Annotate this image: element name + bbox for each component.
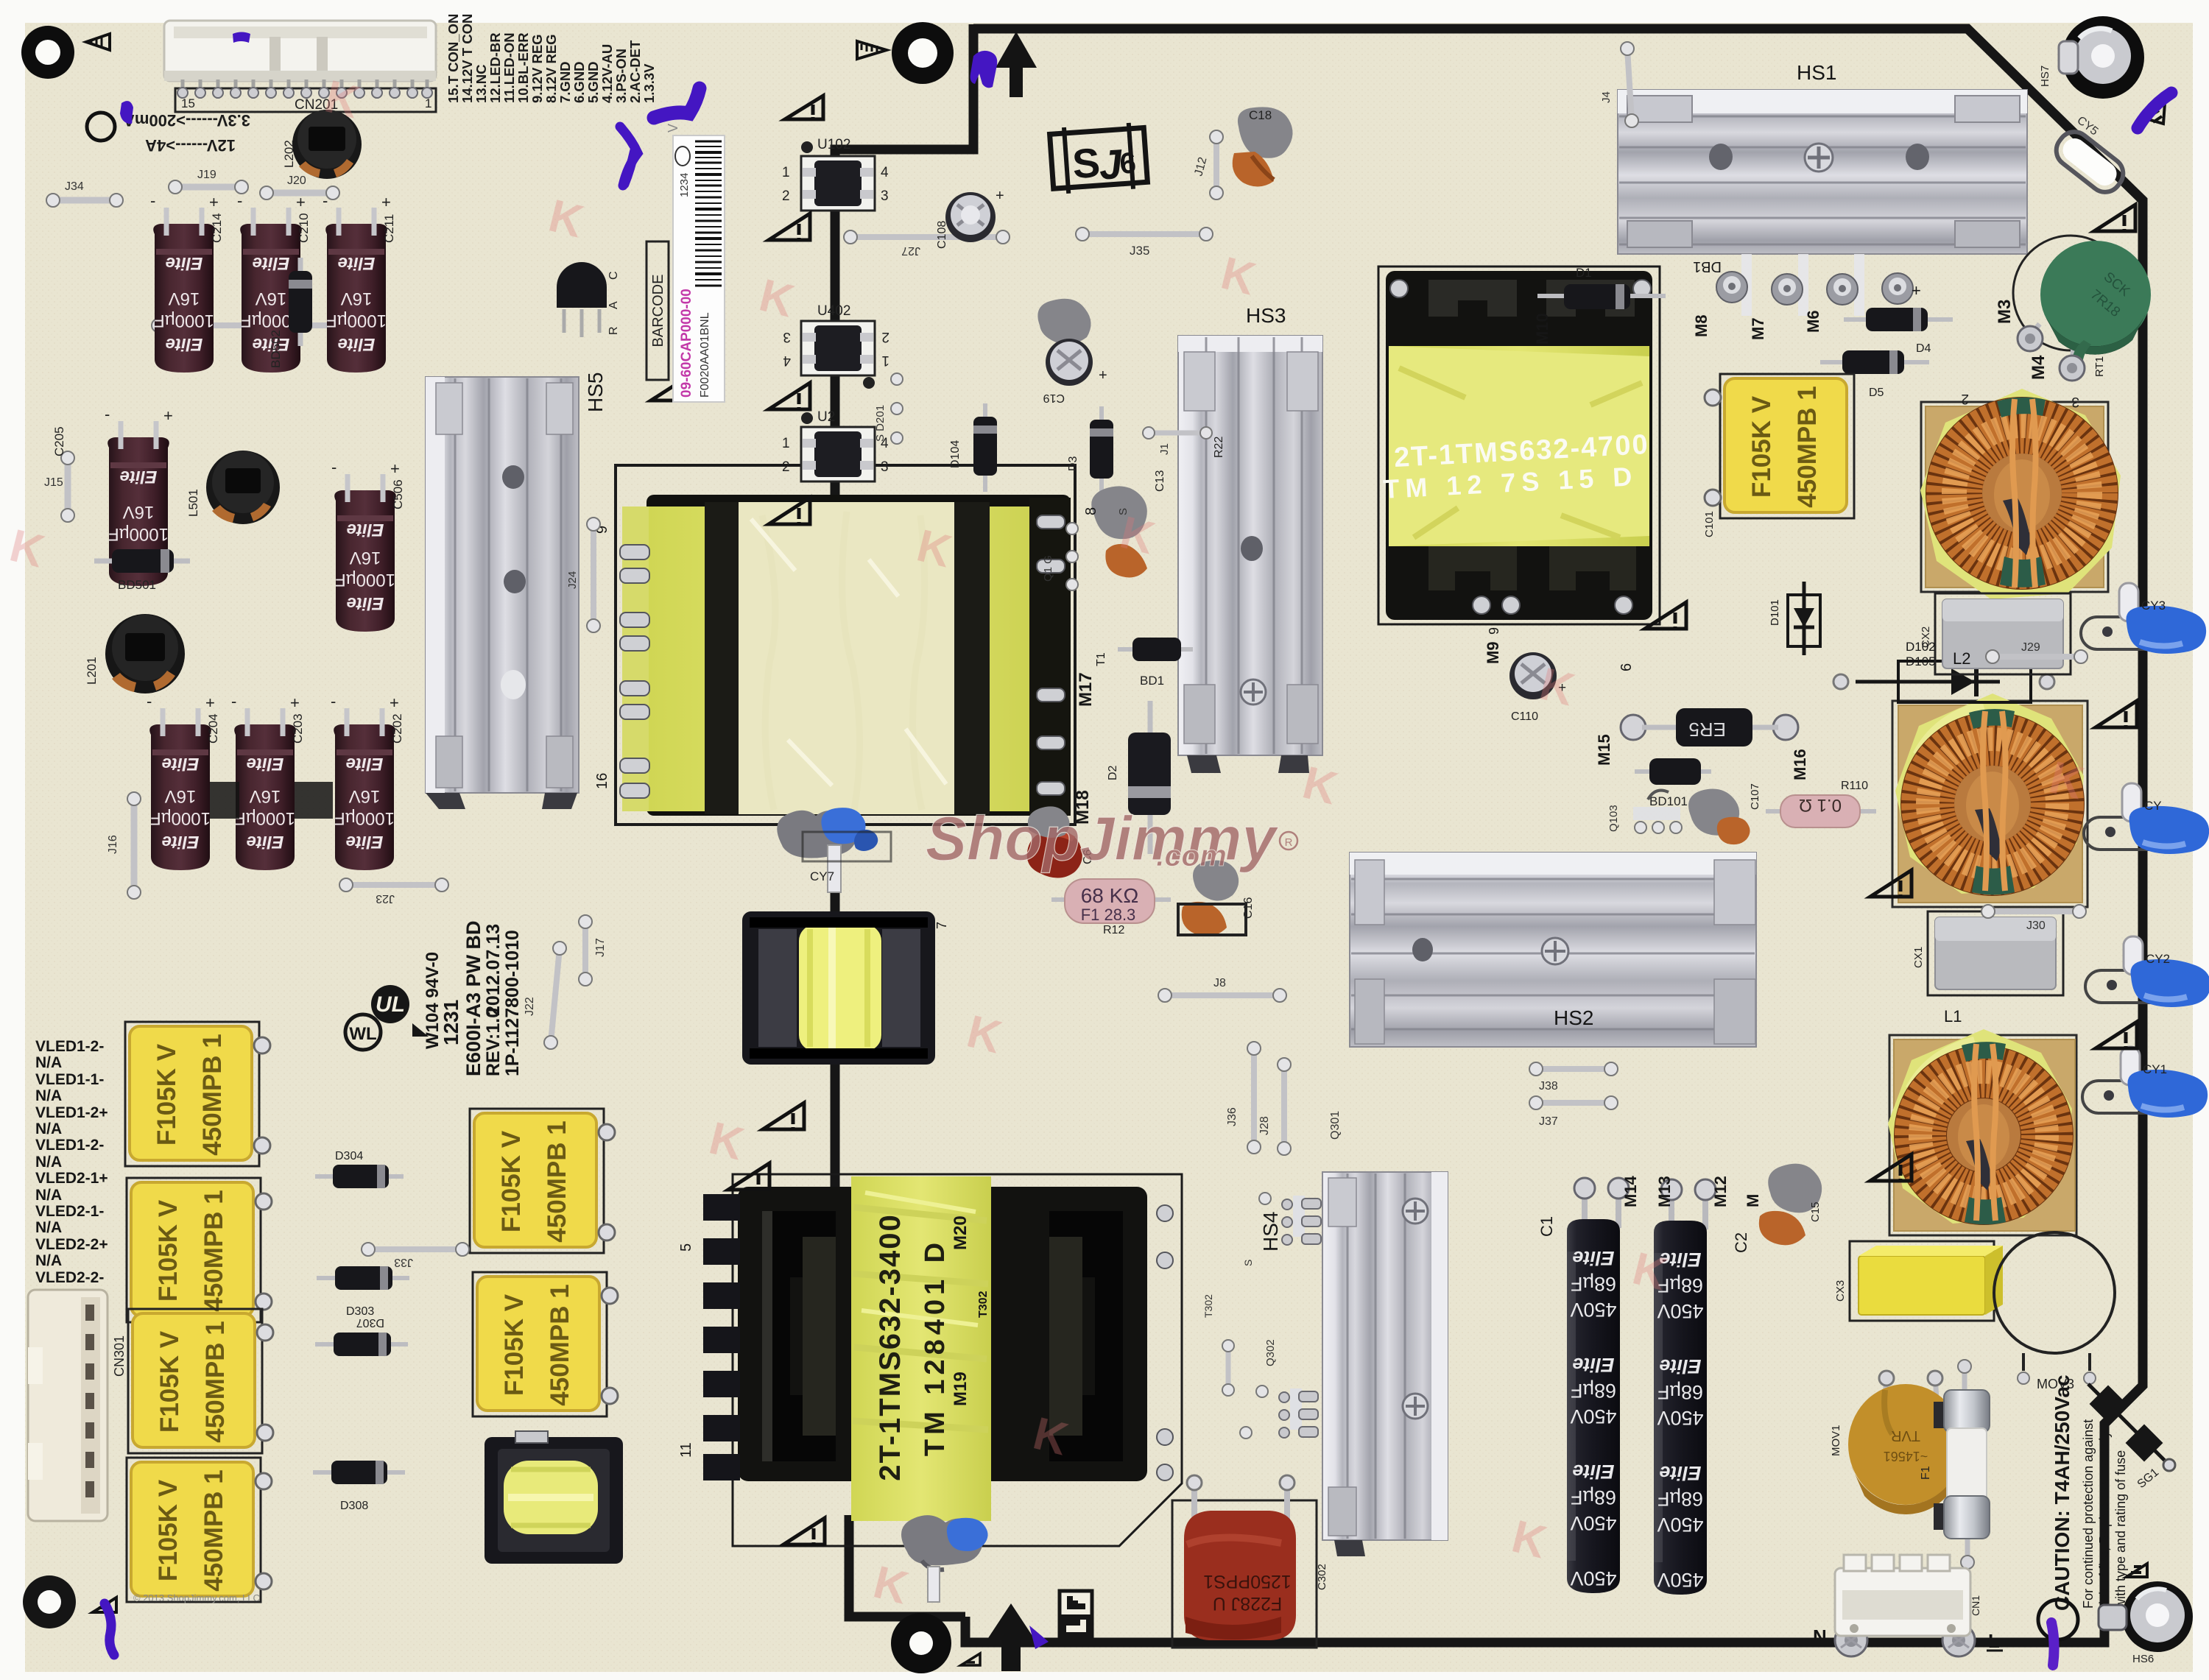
svg-text:~14561: ~14561 [1884,1449,1928,1464]
svg-text:M20: M20 [951,1215,970,1250]
svg-text:VLED1-1-: VLED1-1- [35,1071,104,1088]
svg-text:1: 1 [881,353,889,368]
svg-text:A: A [607,301,620,309]
svg-text:16V: 16V [350,548,381,568]
svg-text:+: + [390,693,399,712]
svg-text:14.12V T CON: 14.12V T CON [459,14,475,103]
svg-text:N: N [1813,1626,1827,1648]
svg-text:CN1: CN1 [1970,1595,1981,1616]
svg-text:16V: 16V [123,502,155,522]
svg-text:3: 3 [881,459,889,475]
svg-text:HS3: HS3 [1246,304,1286,327]
svg-text:C214: C214 [210,213,224,243]
svg-text:4: 4 [783,353,791,368]
svg-text:D4: D4 [1916,342,1931,355]
svg-text:J37: J37 [1539,1115,1558,1128]
svg-text:1234: 1234 [678,173,691,197]
svg-text:5: 5 [678,1243,694,1252]
svg-text:L1: L1 [1944,1007,1962,1026]
svg-text:-: - [147,692,152,710]
svg-text:450MPB 1: 450MPB 1 [200,1190,228,1311]
svg-text:U402: U402 [817,303,850,319]
svg-text:68 KΩ: 68 KΩ [1081,884,1139,907]
svg-text:T302: T302 [977,1291,990,1318]
svg-text:+: + [1099,367,1107,384]
svg-text:Elite: Elite [1659,1355,1701,1377]
svg-text:+: + [390,459,400,478]
svg-text:-: - [237,191,242,210]
svg-text:C210: C210 [297,213,311,243]
svg-text:Elite: Elite [120,467,158,487]
svg-text:C15: C15 [1809,1201,1822,1222]
svg-text:16V: 16V [250,786,281,806]
svg-text:Elite: Elite [1572,1247,1614,1269]
svg-text:C506: C506 [391,479,405,509]
svg-text:VLED1-2-: VLED1-2- [35,1038,104,1055]
svg-text:M10: M10 [1533,313,1551,345]
svg-text:J35: J35 [1130,244,1149,258]
svg-text:450V: 450V [1570,1567,1616,1589]
svg-text:C1: C1 [1537,1216,1556,1237]
svg-text:F105K V: F105K V [500,1293,529,1396]
svg-text:T302: T302 [1202,1294,1214,1318]
svg-text:C2: C2 [1732,1232,1750,1253]
svg-text:U102: U102 [817,137,850,152]
svg-text:N/A: N/A [35,1087,62,1104]
svg-text:MOV1: MOV1 [1830,1425,1842,1456]
svg-text:450V: 450V [1657,1514,1703,1536]
svg-text:450MPB 1: 450MPB 1 [543,1120,571,1242]
svg-text:Elite: Elite [166,334,203,354]
svg-text:450V: 450V [1657,1407,1703,1429]
svg-text:2: 2 [782,459,790,475]
svg-text:CY3: CY3 [2141,599,2166,613]
svg-text:F0020AA01BNL: F0020AA01BNL [699,312,711,398]
svg-text:CY1: CY1 [2143,1062,2167,1076]
svg-text:C19: C19 [1043,392,1065,404]
svg-text:CN301: CN301 [112,1335,127,1377]
svg-text:9.12V REG: 9.12V REG [529,34,545,103]
svg-text:1: 1 [782,165,790,180]
svg-text:J23: J23 [376,892,395,905]
svg-text:CY7: CY7 [810,869,834,883]
svg-text:T1: T1 [1095,652,1107,666]
svg-text:TM 128401 D: TM 128401 D [920,1238,951,1456]
svg-text:D308: D308 [340,1500,368,1512]
svg-text:M: M [1744,1194,1762,1207]
svg-text:68µF: 68µF [1571,1380,1616,1402]
svg-text:1000µF: 1000µF [154,311,214,331]
svg-text:C110: C110 [1511,710,1538,723]
svg-text:BD1: BD1 [1140,674,1164,688]
svg-text:+: + [381,193,391,211]
svg-text:© 2013 ShopJimmy.com, LLC: © 2013 ShopJimmy.com, LLC [133,1592,260,1603]
svg-text:C: C [607,271,620,280]
svg-text:J27: J27 [901,244,920,257]
svg-text:M4: M4 [2029,355,2048,380]
svg-text:1.3.3V: 1.3.3V [641,63,657,103]
svg-text:J17: J17 [594,938,607,957]
svg-text:L2: L2 [1953,649,1970,668]
svg-text:Elite: Elite [347,593,384,613]
svg-text:VLED1-2-: VLED1-2- [35,1137,104,1154]
svg-text:Elite: Elite [346,832,384,852]
svg-text:8: 8 [1083,507,1099,515]
svg-text:11.LED-ON: 11.LED-ON [501,32,517,103]
svg-text:J38: J38 [1539,1080,1558,1093]
svg-text:68µF: 68µF [1571,1273,1616,1295]
svg-text:HS6: HS6 [2132,1653,2154,1665]
svg-text:F105K V: F105K V [152,1043,181,1146]
svg-text:2012.07.13: 2012.07.13 [483,924,504,1016]
svg-text:CY: CY [2144,799,2162,813]
svg-text:2T-1TMS632-3400: 2T-1TMS632-3400 [874,1213,906,1481]
svg-text:0.1 Ω: 0.1 Ω [1799,795,1842,815]
svg-text:Q301: Q301 [1329,1111,1342,1140]
svg-text:HS1: HS1 [1797,61,1836,84]
svg-text:1250PPS1: 1250PPS1 [1203,1571,1292,1592]
svg-text:Elite: Elite [338,334,376,354]
svg-text:Elite: Elite [347,520,384,540]
svg-text:L202: L202 [282,140,296,168]
svg-text:M12: M12 [1711,1176,1730,1207]
svg-text:1P-1127800-1010: 1P-1127800-1010 [502,930,523,1076]
svg-text:-: - [105,405,110,423]
svg-text:J36: J36 [1226,1107,1239,1126]
svg-text:450V: 450V [1657,1300,1703,1322]
svg-text:BARCODE: BARCODE [650,275,666,347]
svg-text:C108: C108 [936,221,948,249]
svg-text:6.GND: 6.GND [571,61,587,103]
svg-text:U2: U2 [817,409,835,425]
svg-text:F105K V: F105K V [154,1479,183,1581]
svg-text:+: + [290,693,300,712]
svg-text:VLED2-2-: VLED2-2- [35,1269,104,1286]
svg-text:D3: D3 [1067,456,1079,471]
svg-text:with type and rating of fuse: with type and rating of fuse [2113,1450,2128,1609]
svg-text:C18: C18 [1249,108,1272,122]
svg-text:CX1: CX1 [1912,947,1925,968]
svg-text:F228J U: F228J U [1213,1593,1282,1614]
svg-text:15.T CON_ON: 15.T CON_ON [445,14,461,103]
svg-text:M13: M13 [1655,1176,1674,1207]
svg-text:V: V [666,124,680,133]
svg-text:3: 3 [783,329,791,345]
svg-text:D1: D1 [1576,266,1592,280]
svg-text:M7: M7 [1749,317,1767,340]
svg-text:12.LED-BR: 12.LED-BR [487,32,503,103]
svg-text:J19: J19 [197,169,216,181]
svg-text:C302: C302 [1316,1564,1328,1590]
svg-text:16V: 16V [341,289,373,308]
svg-text:68µF: 68µF [1657,1381,1703,1403]
svg-text:R12: R12 [1103,924,1124,936]
svg-text:BD101: BD101 [1649,794,1688,808]
svg-text:M18: M18 [1073,790,1093,825]
svg-text:-: - [331,692,336,710]
svg-text:J8: J8 [1213,977,1226,989]
svg-text:+: + [996,188,1004,204]
svg-text:DB1: DB1 [1693,258,1722,275]
svg-text:WL: WL [349,1024,376,1044]
svg-text:M14: M14 [1621,1175,1640,1207]
svg-text:Elite: Elite [162,754,200,774]
svg-text:M6: M6 [1804,310,1822,333]
svg-text:J20: J20 [287,174,306,187]
svg-text:3: 3 [2071,394,2079,409]
svg-text:TVR: TVR [1891,1427,1920,1444]
svg-text:F105K V: F105K V [155,1330,184,1433]
svg-text:Q302: Q302 [1264,1339,1277,1366]
svg-text:11: 11 [678,1442,694,1458]
svg-text:C101: C101 [1703,511,1716,537]
svg-text:+: + [296,193,306,211]
svg-text:R110: R110 [1841,780,1868,792]
svg-text:M15: M15 [1595,734,1613,766]
svg-text:UL: UL [376,992,405,1017]
svg-text:S: S [1242,1260,1254,1266]
svg-text:1000µF: 1000µF [326,311,387,331]
svg-text:N/A: N/A [35,1154,62,1171]
svg-text:N/A: N/A [35,1252,62,1269]
svg-text:R: R [1285,836,1293,849]
svg-text:-: - [231,692,236,710]
svg-text:C204: C204 [206,713,220,744]
svg-text:+: + [209,193,219,211]
svg-text:450V: 450V [1570,1512,1616,1534]
svg-text:HS5: HS5 [584,373,607,412]
svg-text:3.3V------>200mA: 3.3V------>200mA [123,111,250,130]
svg-text:2.AC-DET: 2.AC-DET [627,40,643,103]
svg-text:J33: J33 [394,1256,413,1268]
svg-text:J34: J34 [65,180,84,193]
svg-text:450MPB 1: 450MPB 1 [200,1469,228,1591]
svg-text:F105K V: F105K V [497,1130,526,1232]
svg-text:1: 1 [425,96,431,110]
svg-text:7.GND: 7.GND [557,61,573,103]
svg-text:F1: F1 [1920,1466,1932,1480]
svg-text:Elite: Elite [1659,1462,1701,1484]
svg-text:Elite: Elite [338,253,376,273]
svg-text:6: 6 [1118,147,1137,180]
svg-text:450MPB 1: 450MPB 1 [546,1284,574,1405]
svg-text:C16: C16 [1242,897,1255,919]
svg-text:J1: J1 [1158,443,1171,455]
svg-text:+: + [163,406,173,425]
svg-text:1000µF: 1000µF [108,524,169,544]
svg-text:J22: J22 [524,997,536,1016]
svg-text:N/A: N/A [35,1054,62,1071]
svg-text:.com: .com [1156,839,1227,872]
svg-text:Elite: Elite [1572,1354,1614,1376]
svg-text:D304: D304 [335,1150,363,1162]
svg-text:16: 16 [594,773,610,789]
svg-text:M8: M8 [1692,314,1711,337]
svg-text:ER5: ER5 [1688,719,1726,741]
svg-text:M19: M19 [951,1372,970,1406]
svg-text:8.12V REG: 8.12V REG [543,34,559,103]
svg-text:D2: D2 [1107,765,1119,780]
svg-text:CX2: CX2 [1920,627,1932,648]
svg-text:Elite: Elite [247,832,284,852]
svg-text:16V: 16V [169,289,200,308]
svg-text:4: 4 [881,165,889,180]
svg-text:68µF: 68µF [1657,1488,1703,1510]
svg-text:16V: 16V [349,786,381,806]
svg-text:2: 2 [1961,391,1969,406]
svg-text:REV:1.0: REV:1.0 [483,1008,504,1076]
svg-text:+: + [1912,281,1921,300]
svg-text:J16: J16 [107,835,119,854]
svg-text:D5: D5 [1869,387,1884,399]
svg-text:12V------>4A: 12V------>4A [145,136,236,155]
svg-text:Elite: Elite [346,754,384,774]
svg-text:Elite: Elite [253,253,290,273]
svg-text:6: 6 [1618,663,1635,671]
svg-text:Q103: Q103 [1607,805,1620,832]
svg-text:450V: 450V [1570,1299,1616,1321]
svg-text:-: - [150,191,155,210]
svg-text:N/A: N/A [35,1120,62,1137]
svg-text:M3: M3 [1995,300,2015,324]
svg-text:1000µF: 1000µF [235,808,295,828]
svg-text:VLED2-2+: VLED2-2+ [35,1236,108,1253]
svg-text:J30: J30 [2026,920,2046,932]
svg-text:9: 9 [1487,627,1501,635]
svg-text:68µF: 68µF [1571,1486,1616,1508]
svg-text:D104: D104 [949,440,962,468]
svg-text:450MPB 1: 450MPB 1 [201,1321,230,1442]
svg-text:E600I-A3 PW BD: E600I-A3 PW BD [462,920,485,1076]
svg-text:+: + [205,693,215,712]
svg-text:2: 2 [782,188,790,204]
svg-text:C13: C13 [1154,470,1166,492]
svg-text:BD502: BD502 [269,330,283,368]
svg-text:J24: J24 [566,571,579,589]
svg-text:M9: M9 [1484,641,1502,664]
svg-text:09-60CAP000-00: 09-60CAP000-00 [679,289,694,398]
svg-text:1231: 1231 [440,1000,462,1045]
svg-text:2: 2 [881,329,889,345]
svg-text:450V: 450V [1657,1569,1703,1591]
svg-text:1000µF: 1000µF [150,808,211,828]
svg-text:1000µF: 1000µF [335,570,395,590]
svg-text:N/A: N/A [35,1187,62,1204]
svg-text:Elite: Elite [166,253,203,273]
svg-text:F1 28.3: F1 28.3 [1081,906,1136,924]
svg-text:5.GND: 5.GND [585,61,601,103]
svg-text:BD501: BD501 [118,578,156,592]
svg-text:CX3: CX3 [1834,1280,1847,1302]
svg-text:-: - [331,458,337,476]
svg-text:J4: J4 [1600,91,1613,103]
svg-text:4.12V-AU: 4.12V-AU [599,44,615,103]
svg-text:16V: 16V [256,289,287,308]
svg-text:3.PS-ON: 3.PS-ON [613,49,629,103]
svg-text:J15: J15 [44,476,63,489]
svg-text:For continued protection again: For continued protection against [2081,1419,2096,1609]
svg-text:HS4: HS4 [1259,1212,1282,1252]
svg-text:13.NC: 13.NC [473,65,489,103]
svg-text:D101: D101 [1769,599,1781,626]
svg-text:J28: J28 [1258,1116,1271,1135]
svg-text:CAUTION: T4AH/250Vac: CAUTION: T4AH/250Vac [2051,1374,2074,1611]
svg-text:risk of fire, Replace same onl: risk of fire, Replace same only [2097,1431,2112,1609]
svg-text:N/A: N/A [35,1219,62,1236]
svg-text:16V: 16V [165,786,197,806]
svg-text:C203: C203 [291,713,305,744]
svg-text:450V: 450V [1570,1405,1616,1427]
svg-text:M17: M17 [1076,672,1096,707]
svg-text:J29: J29 [2021,641,2040,654]
svg-text:HS7: HS7 [2039,66,2051,87]
svg-text:VLED1-2+: VLED1-2+ [35,1104,108,1121]
svg-text:L: L [1988,1630,2000,1652]
svg-text:R22: R22 [1213,437,1225,458]
svg-text:450MPB 1: 450MPB 1 [1793,386,1822,507]
svg-text:VLED2-1-: VLED2-1- [35,1203,104,1220]
svg-text:D303: D303 [346,1305,374,1318]
svg-text:F105K V: F105K V [154,1199,183,1302]
svg-text:L201: L201 [85,657,99,685]
svg-text:HS2: HS2 [1554,1006,1593,1029]
svg-text:10.BL-ERR: 10.BL-ERR [515,32,531,103]
svg-text:-: - [323,191,328,210]
svg-text:7: 7 [934,922,949,929]
svg-text:15: 15 [181,96,195,110]
svg-text:R: R [607,326,620,335]
svg-text:C211: C211 [382,214,396,243]
svg-text:RT1: RT1 [2093,356,2106,377]
svg-text:450MPB 1: 450MPB 1 [198,1034,227,1155]
svg-text:Q1 G: Q1 G [1042,555,1054,582]
svg-text:S D201: S D201 [874,405,887,442]
svg-text:Elite: Elite [162,832,200,852]
svg-text:Elite: Elite [247,754,284,774]
svg-text:C202: C202 [390,713,404,744]
svg-text:CY2: CY2 [2146,952,2170,966]
svg-text:Elite: Elite [1572,1461,1614,1483]
svg-text:L501: L501 [186,489,200,517]
svg-text:C107: C107 [1749,783,1761,810]
svg-text:1000µF: 1000µF [334,808,395,828]
svg-text:S: S [1071,139,1102,187]
svg-text:C205: C205 [52,426,66,456]
svg-text:3: 3 [881,188,889,204]
svg-text:VLED2-1+: VLED2-1+ [35,1170,108,1187]
svg-text:F105K V: F105K V [1747,395,1776,498]
svg-text:M16: M16 [1791,749,1809,780]
svg-text:D307: D307 [356,1316,384,1329]
svg-text:1: 1 [782,436,790,451]
